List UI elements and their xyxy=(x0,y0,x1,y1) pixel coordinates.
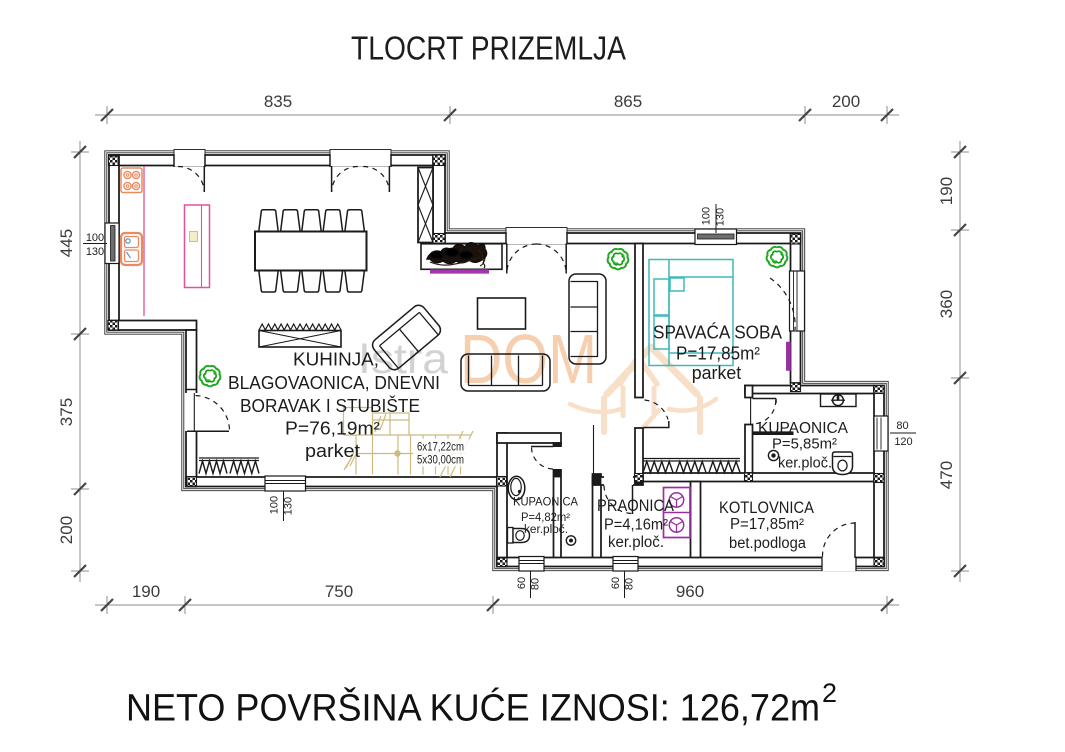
svg-text:KUPAONICA: KUPAONICA xyxy=(513,495,578,509)
svg-text:100: 100 xyxy=(701,207,713,225)
svg-text:865: 865 xyxy=(614,92,642,111)
svg-text:100: 100 xyxy=(86,232,104,244)
svg-text:80: 80 xyxy=(624,578,636,590)
svg-text:80: 80 xyxy=(530,578,542,590)
svg-text:BLAGOVAONICA, DNEVNI: BLAGOVAONICA, DNEVNI xyxy=(228,372,440,393)
svg-text:NETO POVRŠINA KUĆE IZNOSI: 126: NETO POVRŠINA KUĆE IZNOSI: 126,72m xyxy=(126,686,820,730)
svg-text:360: 360 xyxy=(937,290,956,318)
svg-text:375: 375 xyxy=(57,398,76,426)
svg-text:130: 130 xyxy=(86,246,104,258)
svg-text:200: 200 xyxy=(57,516,76,544)
svg-text:KUPAONICA: KUPAONICA xyxy=(758,420,848,437)
svg-text:130: 130 xyxy=(715,208,727,226)
svg-text:2: 2 xyxy=(822,678,837,708)
svg-text:ker.ploč.: ker.ploč. xyxy=(778,455,832,472)
svg-text:ker.ploč.: ker.ploč. xyxy=(608,534,664,551)
svg-text:190: 190 xyxy=(937,177,956,205)
svg-text:parket: parket xyxy=(692,363,742,383)
svg-text:60: 60 xyxy=(516,577,528,589)
svg-text:80: 80 xyxy=(896,420,908,432)
svg-text:bet.podloga: bet.podloga xyxy=(729,535,806,552)
svg-text:P=4,82m²: P=4,82m² xyxy=(521,512,570,524)
svg-text:P=76,19m²: P=76,19m² xyxy=(285,419,380,439)
svg-text:100: 100 xyxy=(269,496,281,514)
svg-text:120: 120 xyxy=(894,436,912,448)
svg-text:SPAVAĆA SOBA: SPAVAĆA SOBA xyxy=(653,322,783,343)
svg-text:445: 445 xyxy=(57,229,76,257)
svg-text:parket: parket xyxy=(305,441,360,461)
svg-text:BORAVAK I STUBIŠTE: BORAVAK I STUBIŠTE xyxy=(240,395,420,416)
svg-text:130: 130 xyxy=(283,497,295,515)
svg-text:470: 470 xyxy=(937,461,956,489)
svg-text:750: 750 xyxy=(325,582,353,601)
svg-text:6x17,22cm: 6x17,22cm xyxy=(417,442,464,454)
svg-text:60: 60 xyxy=(610,577,622,589)
svg-text:P=4,16m²: P=4,16m² xyxy=(604,517,668,534)
svg-text:190: 190 xyxy=(132,582,160,601)
svg-text:KUHINJA,: KUHINJA, xyxy=(293,349,379,370)
svg-text:5x30,00cm: 5x30,00cm xyxy=(417,455,464,467)
svg-text:835: 835 xyxy=(264,92,292,111)
svg-text:P=17,85m²: P=17,85m² xyxy=(730,516,804,533)
svg-text:200: 200 xyxy=(832,92,860,111)
svg-text:960: 960 xyxy=(676,582,704,601)
svg-text:TLOCRT PRIZEMLJA: TLOCRT PRIZEMLJA xyxy=(351,30,626,67)
svg-text:KOTLOVNICA: KOTLOVNICA xyxy=(719,499,814,517)
svg-text:P=5,85m²: P=5,85m² xyxy=(772,436,837,453)
svg-text:PRAONICA: PRAONICA xyxy=(597,497,674,515)
svg-text:P=17,85m²: P=17,85m² xyxy=(676,344,760,364)
svg-text:ker.ploč.: ker.ploč. xyxy=(524,524,568,536)
